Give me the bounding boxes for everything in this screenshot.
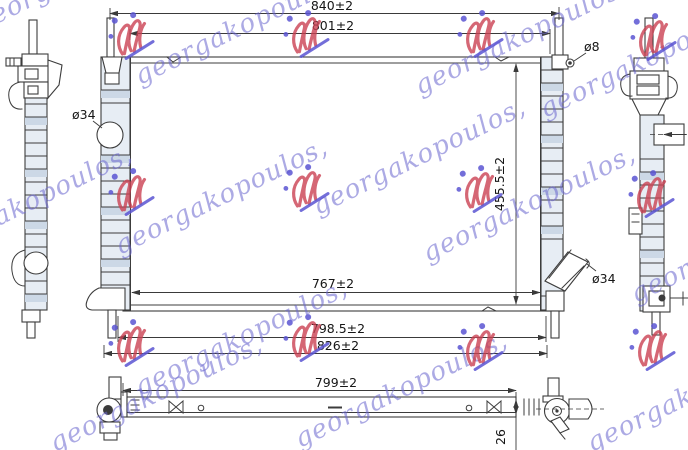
left-tank-band	[101, 259, 130, 267]
lsv-band	[25, 221, 47, 229]
rsv-band	[640, 250, 664, 258]
rsv-funnel	[632, 99, 666, 115]
lsv-hook	[9, 82, 22, 109]
watermark-stamp	[627, 321, 676, 372]
lsv-foot	[22, 310, 40, 322]
right-bottom-pin	[551, 311, 559, 338]
right-tank-band	[541, 226, 563, 234]
lsv-band	[25, 169, 47, 177]
dia-bleed-label: ø8	[584, 39, 600, 54]
bv-angled-pipe-tip	[560, 433, 565, 439]
rsv-head-slot	[637, 86, 659, 95]
right-tank-band	[541, 135, 563, 143]
bv-right-fitting-dot	[555, 409, 558, 412]
leader-outlet	[587, 264, 596, 271]
left-tank-band	[101, 90, 130, 98]
right-foot-bracket	[546, 291, 564, 311]
bv-right-ticks	[524, 399, 539, 415]
watermark-text: georgakopoulos,	[582, 329, 688, 450]
bleed-screw-dot	[568, 61, 572, 65]
radiator-technical-drawing: 840±2 801±2 455.5±2 767±2 798.5±2 826±2 …	[0, 0, 688, 450]
left-bottom-pin	[108, 310, 116, 338]
lsv-lower-hook	[12, 250, 25, 286]
left-top-funnel-base	[105, 73, 119, 84]
lsv-top-pin	[29, 20, 37, 54]
lsv-band	[25, 294, 47, 302]
left-foot-bracket	[86, 288, 125, 310]
lsv-band	[25, 117, 47, 125]
rsv-lower-stud	[670, 292, 688, 305]
lsv-block-inner	[28, 86, 38, 94]
left-top-funnel	[102, 57, 122, 73]
dim-799-label: 799±2	[315, 375, 357, 390]
dim-26-label: 26	[493, 429, 508, 445]
lsv-cap	[22, 54, 48, 66]
dia-outlet-label: ø34	[592, 271, 616, 286]
lsv-top-bracket	[48, 60, 62, 98]
leader-bleed	[574, 53, 586, 61]
lsv-neck-inner	[25, 69, 38, 79]
bv-right-pipe	[548, 378, 559, 398]
lsv-port	[24, 252, 48, 274]
rsv-mid-bracket	[629, 208, 642, 234]
dia-inlet-label: ø34	[72, 107, 96, 122]
radiator-drawing-page: 840±2 801±2 455.5±2 767±2 798.5±2 826±2 …	[0, 0, 688, 450]
lsv-bottom-pin	[27, 322, 35, 338]
